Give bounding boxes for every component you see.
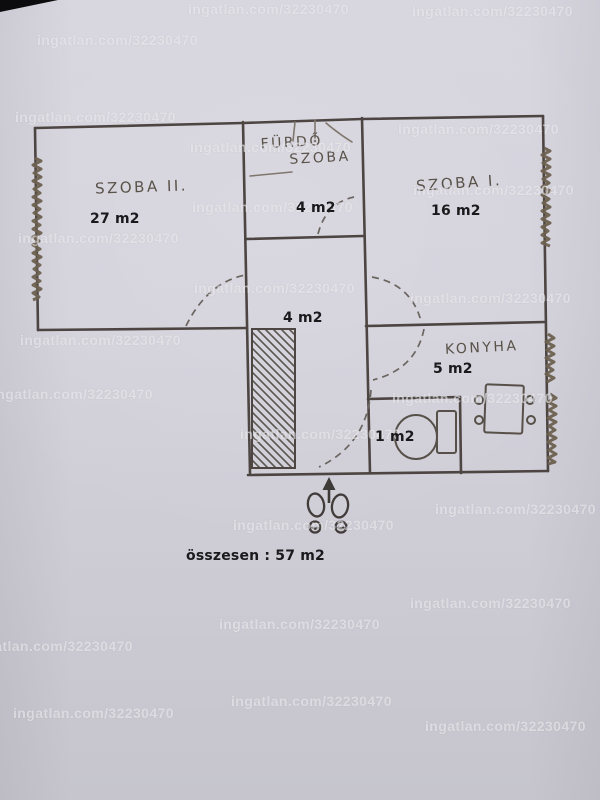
area-label-szoba2: 27 m2	[90, 211, 140, 227]
area-label-konyha: 5 m2	[433, 361, 473, 377]
room-label-furdo: FÜRDŐ SZOBA	[260, 132, 351, 170]
room-label-furdo-line2: SZOBA	[289, 149, 351, 168]
room-label-furdo-line1: FÜRDŐ	[260, 133, 323, 152]
floorplan-photo: SZOBA II. FÜRDŐ SZOBA SZOBA I. KONYHA 27…	[0, 0, 600, 800]
area-label-hall: 4 m2	[283, 310, 323, 326]
photo-corner-shadow	[0, 0, 58, 12]
floorplan-drawing	[0, 0, 600, 800]
area-label-furdo: 4 m2	[296, 200, 336, 216]
door-arc-room1	[372, 277, 421, 321]
closet-hatch	[252, 329, 295, 468]
door-arc-entrance	[319, 390, 371, 467]
total-area-label: összesen : 57 m2	[186, 548, 325, 564]
room-label-szoba2: SZOBA II.	[95, 176, 189, 197]
kitchen-table-icon	[475, 384, 535, 433]
area-label-szoba1: 16 m2	[431, 203, 481, 219]
door-arc-room2	[186, 275, 245, 326]
area-label-wc: 1 m2	[375, 429, 415, 445]
door-arc-kitchen	[373, 329, 424, 380]
